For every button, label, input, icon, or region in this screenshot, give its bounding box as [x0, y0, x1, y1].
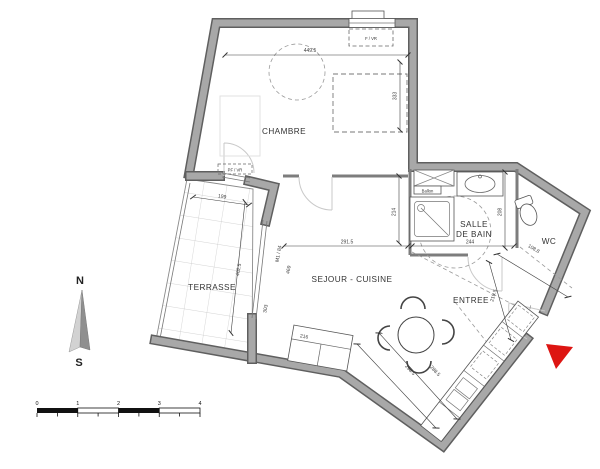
- scale-segment-1: [37, 408, 78, 413]
- label-water-heater: Ballon: [422, 189, 434, 194]
- dim-bay-window: M1 / 84: [275, 245, 284, 263]
- room-label-chambre: CHAMBRE: [262, 127, 306, 136]
- dim-wc-width: 108.8: [527, 243, 541, 255]
- dim-terrace-door: 303: [262, 304, 269, 313]
- room-label-entree: ENTREE: [453, 296, 489, 305]
- room-label-sdb-2: DE BAIN: [456, 230, 492, 239]
- floor-plan-svg: 216 449.5 333 199 402.5 M1 / 84: [0, 0, 600, 469]
- compass-needle-right: [80, 290, 90, 350]
- entrance-marker-triangle: [546, 344, 573, 369]
- dim-terrasse-width: 199: [218, 193, 227, 200]
- room-label-wc: WC: [542, 237, 557, 246]
- door-bathroom: [468, 257, 502, 291]
- compass-south-label: S: [75, 357, 82, 369]
- dim-kitchen-run-2: 288.5: [428, 365, 441, 378]
- chair-north: [401, 297, 425, 309]
- scale-tick-1: 1: [76, 401, 79, 407]
- label-window-top: F / VR: [365, 36, 377, 41]
- room-label-sejour: SEJOUR - CUISINE: [312, 275, 393, 284]
- dim-chambre-width: 449.5: [304, 48, 317, 54]
- dim-entree-depth: 219.5: [489, 289, 498, 303]
- shower: [410, 197, 454, 241]
- chair-west: [378, 326, 390, 350]
- washbasin: [457, 172, 503, 196]
- scale-tick-4: 4: [198, 401, 201, 407]
- compass: N S: [69, 275, 90, 369]
- small-labels: F / VR PF / VR Ballon: [218, 29, 434, 194]
- room-label-terrasse: TERRASSE: [188, 283, 236, 292]
- dim-sejour-depth: 214: [392, 208, 398, 217]
- room-label-sdb-1: SALLE: [460, 220, 488, 229]
- scale-segment-2: [78, 408, 119, 413]
- ceiling-circle-chambre: [269, 44, 325, 100]
- scale-bar: 0 1 2 3 4: [35, 401, 201, 417]
- label-window-terrace: PF / VR: [228, 168, 243, 173]
- scale-segment-4: [159, 408, 200, 413]
- floor-plan-page: 216 449.5 333 199 402.5 M1 / 84: [0, 0, 600, 469]
- dim-kitchen-run-1: 298.5: [403, 364, 416, 377]
- dim-sejour-width: 291.5: [341, 240, 354, 246]
- chair-east: [442, 320, 454, 344]
- window-bay-sejour: [252, 220, 267, 319]
- dim-bay-total: 469: [285, 265, 292, 274]
- dining-table-set: [378, 297, 454, 373]
- scale-segment-3: [119, 408, 160, 413]
- water-heater: [414, 170, 454, 194]
- scale-tick-0: 0: [35, 401, 38, 407]
- compass-north-label: N: [76, 275, 84, 287]
- wardrobe-dashed: [333, 74, 407, 132]
- door-chambre-sejour: [299, 177, 332, 210]
- dim-chambre-depth: 333: [393, 92, 399, 101]
- roller-shutter-box: [352, 11, 384, 19]
- dim-sdb-width: 244: [466, 240, 475, 246]
- dim-sdb-depth: 208: [498, 208, 504, 217]
- scale-tick-2: 2: [117, 401, 120, 407]
- scale-tick-3: 3: [158, 401, 161, 407]
